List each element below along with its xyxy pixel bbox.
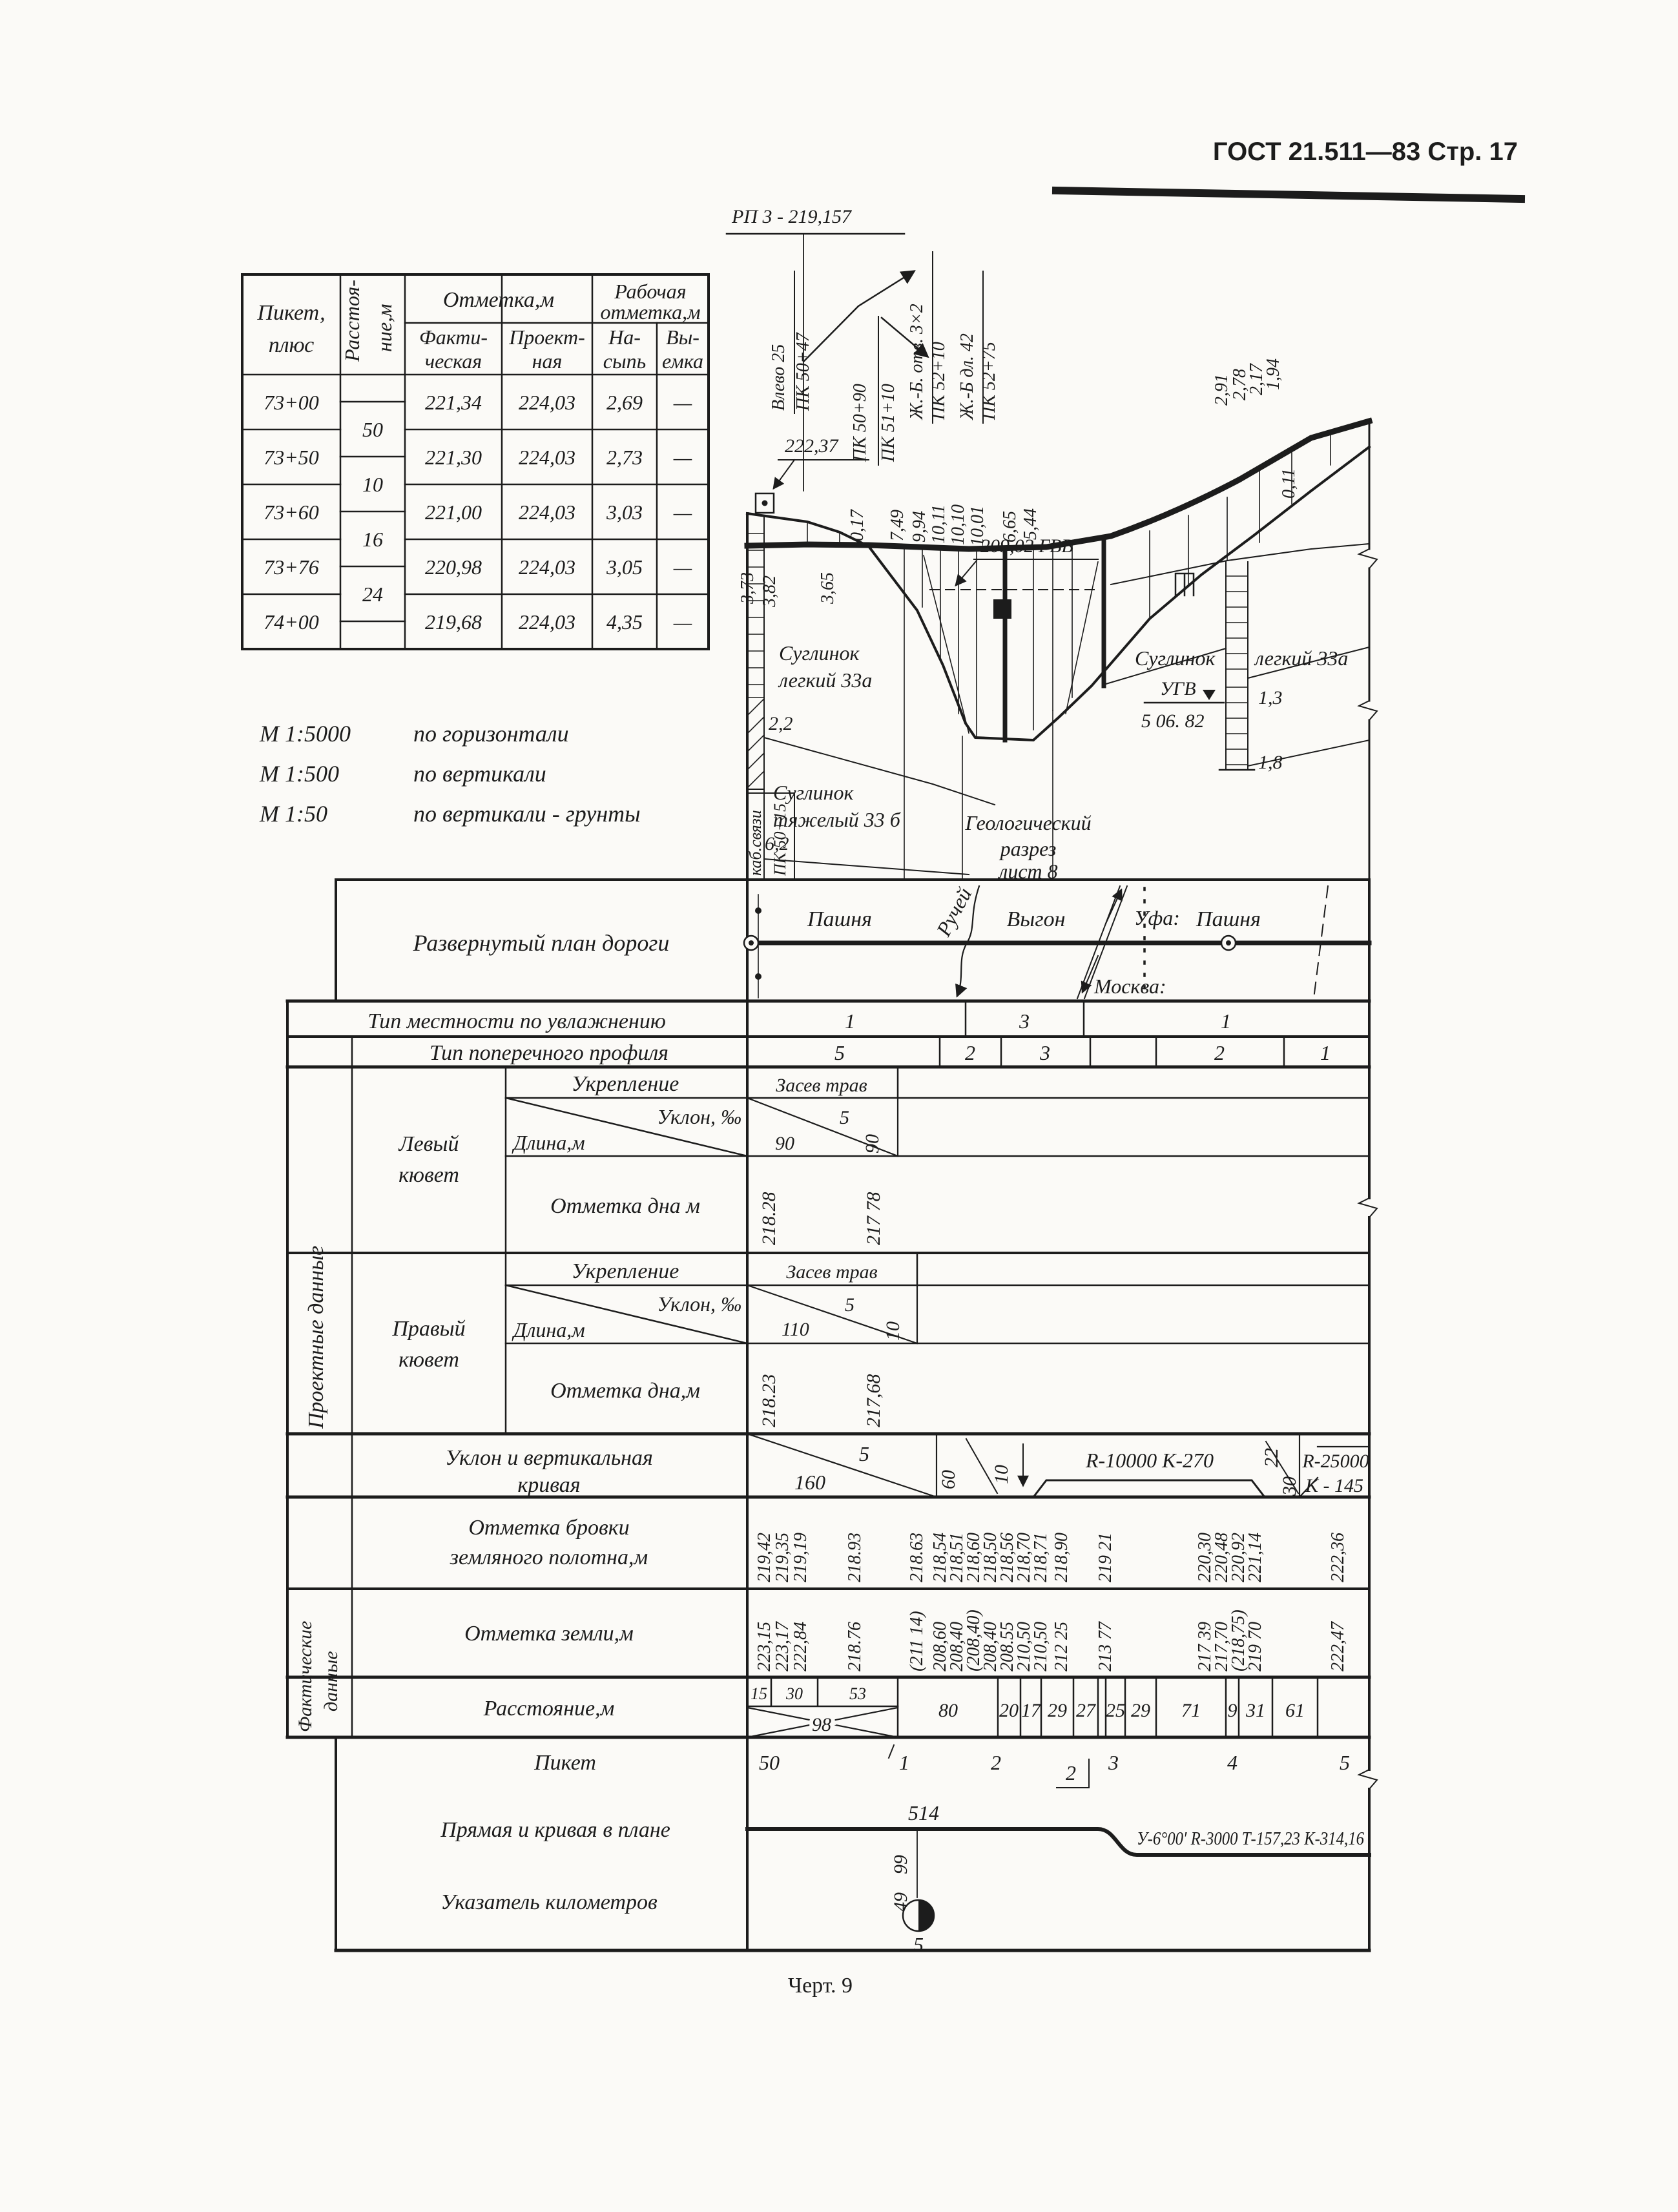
- row-label-picket: Пикет: [533, 1751, 596, 1775]
- scale-notes: М 1:5000 по горизонтали М 1:500 по верти…: [259, 721, 641, 827]
- work-mark-fill: 0,11: [1279, 468, 1299, 499]
- edge-mark: 222,36: [1328, 1533, 1348, 1582]
- benchmark-arrow: [774, 460, 794, 488]
- cell-design: 224,03: [519, 555, 575, 579]
- benchmark-elevation: 222,37: [785, 435, 840, 457]
- col-work-label-1: Рабочая: [614, 280, 686, 303]
- km-post-icon-half: [918, 1900, 934, 1931]
- row-label-grade-1: Уклон и вертикальная: [445, 1446, 653, 1470]
- distance-value: 15: [751, 1684, 767, 1703]
- picket-number-boxed: 2: [1066, 1761, 1076, 1784]
- curve-parameters-value: У-6°00′ R-3000 Т-157,23 К-314,16: [1137, 1829, 1364, 1849]
- col-picket-label-1: Пикет,: [256, 301, 325, 325]
- right-ditch-bottom-mark: 218.23: [758, 1374, 780, 1428]
- km-indicator-row: 49 5: [890, 1892, 934, 1956]
- work-mark-fill: 7,49: [887, 510, 907, 541]
- work-mark-fill: 2,91: [1212, 374, 1232, 406]
- col-distance-label-2: ние,м: [373, 304, 396, 353]
- cell-fill: 4,35: [606, 610, 643, 634]
- slope-line-left: [924, 555, 969, 733]
- terrain-type-value: 1: [845, 1009, 855, 1033]
- picket-number: 2: [991, 1751, 1001, 1774]
- grade-10-value: 10: [991, 1465, 1012, 1484]
- cross-profile-value: 1: [1320, 1041, 1331, 1064]
- slope-line-right: [1066, 562, 1098, 714]
- scale-2-text: по вертикали: [413, 761, 546, 787]
- cross-profile-value: 3: [1039, 1041, 1050, 1064]
- cell-actual: 219,68: [425, 610, 482, 634]
- edge-mark: 219,19: [791, 1533, 811, 1582]
- right-ditch-length-value: 110: [782, 1319, 809, 1340]
- groundwater-triangle-icon: [1203, 690, 1216, 700]
- cable-marker-dot: [755, 907, 761, 914]
- cell-picket: 73+76: [264, 555, 319, 579]
- distance-to-curve-value: 99: [890, 1855, 911, 1874]
- scale-3-value: М 1:50: [259, 801, 327, 827]
- grid-horizontal-rules: [287, 880, 1369, 1950]
- cell-distance: 10: [362, 473, 383, 496]
- row-label-length-left: Длина,м: [512, 1131, 585, 1154]
- edge-mark: 218,71: [1031, 1533, 1051, 1582]
- elevation-table: Пикет, плюс Расстоя- ние,м Отметка,м Фак…: [242, 274, 709, 649]
- ground-mark: 223,17: [772, 1621, 792, 1671]
- break-squiggle: [1359, 549, 1377, 720]
- col-mark-label: Отметка,м: [443, 288, 554, 312]
- edge-mark: 218.93: [845, 1533, 865, 1582]
- row-label-slope-left: Уклон, ‰: [657, 1105, 741, 1128]
- cell-picket: 73+00: [264, 391, 319, 414]
- cell-cut: —: [673, 501, 692, 524]
- col-design-label-1: Проект-: [508, 326, 585, 349]
- distance-value: 29: [1048, 1700, 1067, 1721]
- design-line: [747, 421, 1369, 549]
- direction-arrow-1: [803, 271, 914, 362]
- direction-label-ufa: Уфа:: [1134, 906, 1180, 929]
- terrain-type-value: 3: [1019, 1009, 1030, 1033]
- scale-1-value: М 1:5000: [259, 721, 351, 747]
- col-cut-label-1: Вы-: [666, 326, 699, 349]
- cable-crossing-label: каб.связи: [746, 810, 765, 876]
- cell-fill: 3,03: [606, 501, 643, 524]
- cell-picket: 74+00: [264, 610, 319, 634]
- soil-right-label-1: Суглинок: [1135, 646, 1216, 670]
- note-pk5110: ПК 51+10: [878, 384, 898, 462]
- soil-depth-6-2: 6,2: [765, 833, 789, 854]
- km-point-dot-icon: [749, 940, 754, 946]
- distance-value: 9: [1228, 1700, 1238, 1721]
- cross-row-dividers: [940, 1037, 1284, 1067]
- picket-number: 5: [1340, 1751, 1350, 1774]
- right-ditch-slope-value: 5: [845, 1294, 855, 1316]
- grade-length-value: 160: [794, 1471, 825, 1494]
- right-ditch-reinforce-value: Засев трав: [786, 1261, 877, 1283]
- left-ditch-length-value: 90: [775, 1133, 794, 1154]
- picket-number: 50: [759, 1751, 780, 1774]
- picket-number: 4: [1227, 1751, 1238, 1774]
- benchmark-symbol-dot: [762, 501, 768, 506]
- row-label-plan: Развернутый план дороги: [413, 930, 670, 956]
- picket-number: 1: [899, 1751, 909, 1774]
- note-culvert-pk: ПК 52+10: [929, 342, 949, 420]
- ground-mark: 222,84: [791, 1622, 811, 1671]
- soil-label-light-loam-2: легкий 33а: [778, 668, 872, 692]
- cell-cut: —: [673, 555, 692, 579]
- col-actual-label-2: ческая: [425, 349, 482, 373]
- distance-value: 25: [1106, 1700, 1125, 1721]
- direction-label-moskva: Москва:: [1093, 975, 1166, 998]
- distance-value: 61: [1285, 1700, 1305, 1721]
- cross-profile-value: 5: [834, 1041, 845, 1064]
- row-label-ground-mark: Отметка земли,м: [464, 1622, 634, 1646]
- row-label-bottom-left: Отметка дна м: [550, 1194, 700, 1218]
- distance-subcell-lines: [747, 1677, 898, 1706]
- cell-actual: 221,34: [425, 391, 482, 414]
- cross-profile-value: 2: [965, 1041, 975, 1064]
- row-label-grade-2: кривая: [517, 1473, 580, 1497]
- edge-mark: 221,14: [1245, 1533, 1265, 1582]
- col-cut-label-2: емка: [662, 349, 703, 373]
- edge-mark: 219 21: [1095, 1533, 1115, 1582]
- edge-mark: 218,90: [1051, 1533, 1072, 1582]
- row-label-left-ditch-1: Левый: [399, 1132, 459, 1156]
- cell-actual: 220,98: [425, 555, 482, 579]
- row-label-right-ditch-1: Правый: [391, 1317, 465, 1341]
- work-mark-fill: 9,94: [909, 511, 929, 543]
- row-label-distance: Расстояние,м: [483, 1697, 615, 1721]
- geology-note-1: Геологический: [964, 811, 1091, 834]
- tangent-length-value: 514: [908, 1801, 939, 1824]
- row-label-reinforce-right: Укрепление: [572, 1259, 679, 1283]
- borehole-ladder-hatch: [747, 533, 764, 698]
- groundwater-date: 5 06. 82: [1141, 710, 1205, 732]
- curve-r25000-value: R-25000: [1301, 1451, 1369, 1472]
- note-pk5090: ПК 50+90: [850, 384, 870, 462]
- edge-mark: 219,35: [772, 1533, 792, 1582]
- row-label-right-ditch-2: кювет: [399, 1348, 459, 1372]
- longitudinal-profile: РП 3 - 219,157 222,37 Влево 25 ПК 50+47 …: [727, 206, 1377, 883]
- distance-value: 20: [999, 1700, 1019, 1721]
- soil-right-label-2: легкий 33а: [1254, 646, 1348, 670]
- elevation-table-rows: 73+00 221,34 224,03 2,69 — 73+50 221,30 …: [264, 391, 692, 634]
- grade-60-value: 60: [938, 1470, 959, 1489]
- cell-actual: 221,00: [425, 501, 482, 524]
- ground-marks-row: 223,15 223,17 222,84 218.76 (211 14) 208…: [754, 1609, 1348, 1671]
- borehole-ladder-hatch: [1226, 576, 1248, 765]
- row-label-reinforce-left: Укрепление: [572, 1072, 679, 1096]
- cell-design: 224,03: [519, 446, 575, 469]
- unrolled-plan-row: Пашня Ручей Выгон Уфа: Москва: Пашня: [744, 884, 1369, 998]
- cell-fill: 2,73: [606, 446, 643, 469]
- work-mark-fill: 10,11: [929, 504, 949, 544]
- plan-line-row: 514 99 У-6°00′ R-3000 Т-157,23 К-314,16: [747, 1801, 1369, 1897]
- picket-tick: [889, 1745, 894, 1758]
- header-underline: [1056, 191, 1521, 199]
- cell-fill: 3,05: [606, 555, 643, 579]
- col-distance-label-1: Расстоя-: [340, 280, 364, 362]
- row-label-edge-mark-2: земляного полотна,м: [450, 1545, 648, 1569]
- cell-cut: —: [673, 391, 692, 414]
- cell-fill: 2,69: [606, 391, 643, 414]
- gost-standard-page: ГОСТ 21.511—83 Стр. 17 Пикет, плюс Расст…: [0, 0, 1678, 2212]
- cross-profile-value: 2: [1214, 1041, 1225, 1064]
- culvert-symbol: [993, 599, 1011, 619]
- row-label-cross-profile: Тип поперечного профиля: [430, 1041, 668, 1065]
- distance-value: 80: [938, 1700, 958, 1721]
- work-mark-fill: 1,94: [1263, 358, 1283, 390]
- soil-label-heavy-loam-2: тяжелый 33 б: [773, 808, 901, 831]
- cable-marker-dot: [755, 973, 761, 980]
- col-picket-label-2: плюс: [269, 333, 314, 357]
- col-design-label-2: ная: [532, 349, 563, 373]
- edge-mark: 218.63: [907, 1533, 927, 1582]
- distance-value: 29: [1131, 1700, 1150, 1721]
- curve-r10000-value: R-10000 К-270: [1085, 1449, 1214, 1472]
- page-header-title: ГОСТ 21.511—83 Стр. 17: [1213, 138, 1518, 166]
- km-number-value: 5: [913, 1933, 924, 1956]
- flood-level-label: 209,02 ГВВ: [980, 535, 1073, 557]
- grade-30-value: 30: [1279, 1476, 1300, 1496]
- left-ditch-slope-value: 5: [840, 1107, 849, 1128]
- ground-mark: 222,47: [1328, 1621, 1348, 1671]
- land-use-pashnya-2: Пашня: [1196, 907, 1261, 931]
- cell-actual: 221,30: [425, 446, 482, 469]
- distance-value: 71: [1181, 1700, 1201, 1721]
- profile-data-grid: Развернутый план дороги Тип местности по…: [287, 880, 1377, 1956]
- cell-design: 224,03: [519, 610, 575, 634]
- left-ditch-bottom-mark: 218.28: [758, 1192, 780, 1246]
- land-use-vygon: Выгон: [1007, 907, 1066, 931]
- distance-value: 30: [785, 1684, 803, 1703]
- left-ditch-bottom-mark: 217 78: [863, 1192, 884, 1246]
- group-label-actual-data-2: данные: [320, 1651, 342, 1711]
- bore-depth-1-3: 1,3: [1258, 687, 1283, 708]
- row-label-edge-mark-1: Отметка бровки: [468, 1516, 629, 1540]
- col-actual-label-1: Факти-: [419, 326, 488, 349]
- note-culvert: Ж.-Б. отв. 3×2: [907, 304, 927, 420]
- scale-1-text: по горизонтали: [413, 721, 569, 747]
- cell-design: 224,03: [519, 501, 575, 524]
- work-mark-fill: 10,10: [948, 504, 968, 545]
- distance-value: 98: [812, 1714, 831, 1735]
- right-ditch-bottom-mark: 217,68: [863, 1374, 884, 1428]
- cell-distance: 16: [362, 528, 383, 551]
- col-work-label-2: отметка,м: [600, 300, 700, 324]
- ground-mark: 218.76: [845, 1622, 865, 1671]
- scale-2-value: М 1:500: [259, 761, 339, 787]
- soil-depth-2-2: 2,2: [769, 713, 793, 734]
- cell-picket: 73+50: [264, 446, 319, 469]
- grade-diagonal: [747, 1434, 937, 1497]
- distance-value: 53: [849, 1684, 866, 1703]
- ground-mark: (211 14): [907, 1611, 927, 1671]
- ground-mark: 210,50: [1031, 1622, 1051, 1671]
- figure-caption: Черт. 9: [788, 1974, 853, 1998]
- grade-slope-value: 5: [859, 1442, 869, 1465]
- stream-label: Ручей: [931, 884, 976, 940]
- note-bridge: Ж.-Б дл. 42: [957, 333, 977, 420]
- distance-value: 31: [1245, 1700, 1265, 1721]
- km-point-dot-icon: [1226, 940, 1231, 946]
- work-mark-cut: 3,82: [760, 575, 780, 608]
- cell-cut: —: [673, 446, 692, 469]
- picket-number: 3: [1108, 1751, 1119, 1774]
- row-label-length-right: Длина,м: [512, 1318, 585, 1341]
- ground-mark: 213 77: [1095, 1621, 1115, 1671]
- row-label-terrain-type: Тип местности по увлажнению: [368, 1009, 666, 1033]
- geology-note-2: разрез: [999, 837, 1057, 860]
- benchmark-label: РП 3 - 219,157: [731, 206, 853, 227]
- row-label-km-indicator: Указатель километров: [440, 1890, 658, 1914]
- terrain-type-value: 1: [1221, 1009, 1231, 1033]
- row-label-left-ditch-2: кювет: [399, 1163, 459, 1187]
- note-vlevo-pk: ПК 50+47: [793, 332, 813, 411]
- cell-cut: —: [673, 610, 692, 634]
- borehole-diagonal-hatch: [747, 699, 764, 788]
- row-label-slope-right: Уклон, ‰: [657, 1292, 741, 1316]
- edge-mark: 219,42: [754, 1533, 774, 1582]
- cell-distance: 50: [362, 418, 383, 441]
- ground-mark: 223,15: [754, 1622, 774, 1671]
- distance-value: 17: [1021, 1700, 1042, 1721]
- cell-distance: 24: [362, 583, 383, 606]
- col-fill-label-2: сыпь: [603, 349, 646, 373]
- left-ditch-reinforce-value: Засев трав: [776, 1075, 867, 1096]
- left-ditch-slope2-value: 90: [862, 1134, 883, 1153]
- group-label-design-data: Проектные данные: [304, 1246, 328, 1429]
- work-mark-cut: 3,65: [818, 572, 838, 605]
- cell-picket: 73+60: [264, 501, 319, 524]
- borehole-borders: [1226, 562, 1248, 769]
- groundwater-label: УГВ: [1160, 678, 1196, 699]
- row-label-plan-line: Прямая и кривая в плане: [440, 1818, 670, 1842]
- grid-vertical-rules: [287, 880, 1377, 1950]
- ground-mark: 212 25: [1051, 1622, 1072, 1671]
- grade-row: 160 5 60 10 R-10000 К-270 22 30 R-25000 …: [747, 1434, 1369, 1497]
- edge-marks-row: 219,42 219,35 219,19 218.93 218.63 218,5…: [754, 1533, 1348, 1582]
- note-bridge-pk: ПК 52+75: [979, 342, 999, 420]
- group-label-actual-data-1: Фактические: [295, 1621, 316, 1732]
- curve-k145-value: К - 145: [1305, 1475, 1363, 1496]
- right-ditch-slope2-value: 10: [882, 1321, 904, 1341]
- land-use-pashnya-1: Пашня: [807, 907, 872, 931]
- col-fill-label-1: На-: [608, 326, 641, 349]
- vertical-curve-bracket: [1033, 1480, 1265, 1497]
- distance-value: 27: [1076, 1700, 1097, 1721]
- note-vlevo: Влево 25: [769, 344, 789, 411]
- soil-label-heavy-loam-1: Суглинок: [773, 781, 854, 804]
- ground-mark: 219 70: [1245, 1622, 1265, 1671]
- page-header: ГОСТ 21.511—83 Стр. 17: [1056, 138, 1521, 199]
- row-label-bottom-right: Отметка дна,м: [550, 1379, 700, 1403]
- soil-label-light-loam-1: Суглинок: [779, 641, 860, 665]
- scale-3-text: по вертикали - грунты: [413, 801, 641, 827]
- distance-row: 15 30 53 98 80 20 17 29 27 25 29 71 9 31…: [747, 1677, 1318, 1737]
- right-borehole: [1219, 562, 1254, 770]
- cell-design: 224,03: [519, 391, 575, 414]
- picket-row: 50 1 2 2 3 4 5: [759, 1745, 1350, 1788]
